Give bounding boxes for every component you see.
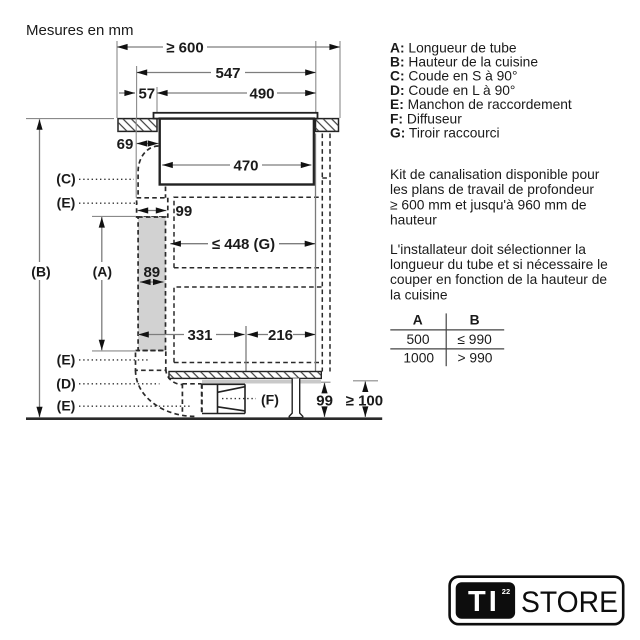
svg-text:les plans de travail de profon: les plans de travail de profondeur (390, 182, 594, 197)
svg-text:D: Coude en L à 90°: D: Coude en L à 90° (390, 83, 515, 98)
svg-text:(C): (C) (56, 171, 75, 187)
svg-text:longueur du tube et si nécessa: longueur du tube et si nécessaire le (390, 257, 608, 272)
svg-text:216: 216 (268, 327, 293, 344)
svg-text:L'installateur doit sélectionn: L'installateur doit sélectionner la (390, 242, 586, 257)
svg-text:(D): (D) (56, 375, 75, 391)
svg-text:99: 99 (316, 393, 333, 410)
svg-text:Kit de canalisation disponible: Kit de canalisation disponible pour (390, 167, 600, 182)
svg-text:E: Manchon de raccordement: E: Manchon de raccordement (390, 97, 572, 112)
svg-text:22: 22 (502, 587, 510, 596)
svg-text:331: 331 (187, 327, 212, 344)
svg-text:99: 99 (176, 203, 193, 220)
svg-text:(E): (E) (57, 352, 76, 368)
svg-text:F: Diffuseur: F: Diffuseur (390, 111, 462, 126)
svg-text:≥ 600: ≥ 600 (166, 39, 203, 56)
svg-text:490: 490 (249, 85, 274, 102)
svg-text:≤ 448 (G): ≤ 448 (G) (212, 236, 275, 253)
svg-text:69: 69 (117, 136, 134, 153)
svg-text:547: 547 (215, 65, 240, 82)
svg-text:470: 470 (233, 157, 258, 174)
svg-text:(A): (A) (93, 264, 112, 280)
svg-text:TI: TI (468, 586, 500, 618)
svg-text:(E): (E) (57, 398, 76, 414)
svg-text:≥ 100: ≥ 100 (346, 393, 383, 410)
svg-text:1000: 1000 (403, 350, 434, 365)
svg-text:couper en fonction de la haute: couper en fonction de la hauteur de (390, 272, 607, 287)
svg-text:A: Longueur de tube: A: Longueur de tube (390, 40, 517, 55)
svg-text:> 990: > 990 (458, 350, 493, 365)
svg-text:(F): (F) (261, 391, 279, 407)
svg-text:(B): (B) (31, 264, 50, 280)
svg-text:la cuisine: la cuisine (390, 287, 448, 302)
svg-text:G: Tiroir raccourci: G: Tiroir raccourci (390, 126, 500, 141)
svg-text:57: 57 (138, 85, 155, 102)
svg-text:C: Coude en S à 90°: C: Coude en S à 90° (390, 69, 517, 84)
svg-text:A: A (413, 313, 423, 328)
svg-text:STORE: STORE (521, 586, 618, 619)
svg-text:B: B (470, 313, 480, 328)
svg-text:89: 89 (143, 264, 160, 281)
svg-text:≥ 600 mm et jusqu'à 960 mm de: ≥ 600 mm et jusqu'à 960 mm de (390, 197, 587, 212)
svg-text:(E): (E) (57, 195, 76, 211)
svg-text:500: 500 (406, 332, 429, 347)
svg-text:≤ 990: ≤ 990 (457, 332, 492, 347)
svg-text:hauteur: hauteur (390, 213, 437, 228)
svg-text:B: Hauteur de la cuisine: B: Hauteur de la cuisine (390, 55, 538, 70)
svg-text:Mesures en mm: Mesures en mm (26, 22, 134, 39)
